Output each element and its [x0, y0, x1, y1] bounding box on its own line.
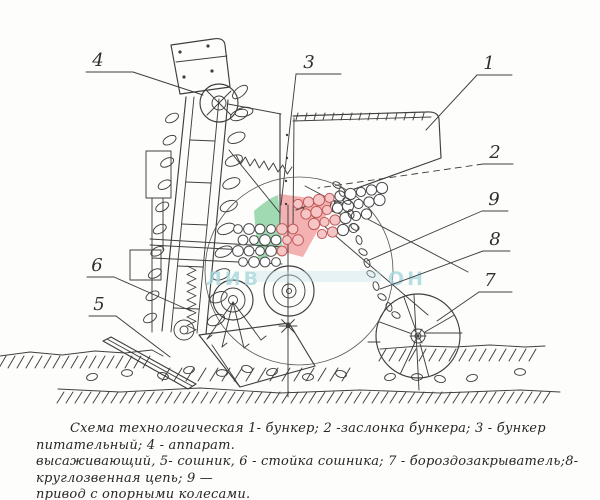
callout-leader-line: [367, 211, 482, 261]
caption-line-1: Схема технологическая 1- бункер; 2 -засл…: [36, 421, 581, 454]
callout-number-7: 7: [484, 270, 496, 291]
callout-number-9: 9: [488, 189, 499, 210]
callout-number-1: 1: [483, 53, 494, 74]
figure-caption: Схема технологическая 1- бункер; 2 -засл…: [36, 421, 581, 500]
callout-leader-line: [133, 72, 203, 95]
watermark-text-left: ЛИВ: [206, 268, 261, 290]
callout-number-8: 8: [489, 229, 500, 250]
bottom-pulley: [174, 320, 194, 340]
callout-number-6: 6: [91, 255, 102, 276]
callout-leader-line: [426, 75, 477, 130]
callout-number-2: 2: [488, 142, 500, 163]
coulter-spring: [187, 266, 196, 334]
ground-hatching: [0, 345, 560, 403]
watermark-text: ЛИВ ОН: [206, 268, 426, 290]
callout-leader-line: [437, 292, 479, 321]
tension-spring: [236, 155, 292, 174]
elevator-rails: [162, 97, 228, 334]
caption-line-3: привод с опорными колесами.: [36, 487, 581, 500]
callout-number-3: 3: [303, 52, 314, 73]
callout-leader-line: [114, 277, 191, 311]
caption-line-2: высаживающий, 5- сошник, 6 - стойка сошн…: [36, 454, 581, 487]
callout-leader-line: [318, 164, 483, 188]
rear-wheel: [368, 294, 462, 390]
callout-number-4: 4: [91, 50, 103, 71]
callout-number-5: 5: [93, 294, 104, 315]
scanned-technical-drawing-page: ЛИВ ОН 123456789 Схема технологическая 1…: [0, 0, 600, 500]
apparatus-top-box: [171, 39, 230, 94]
